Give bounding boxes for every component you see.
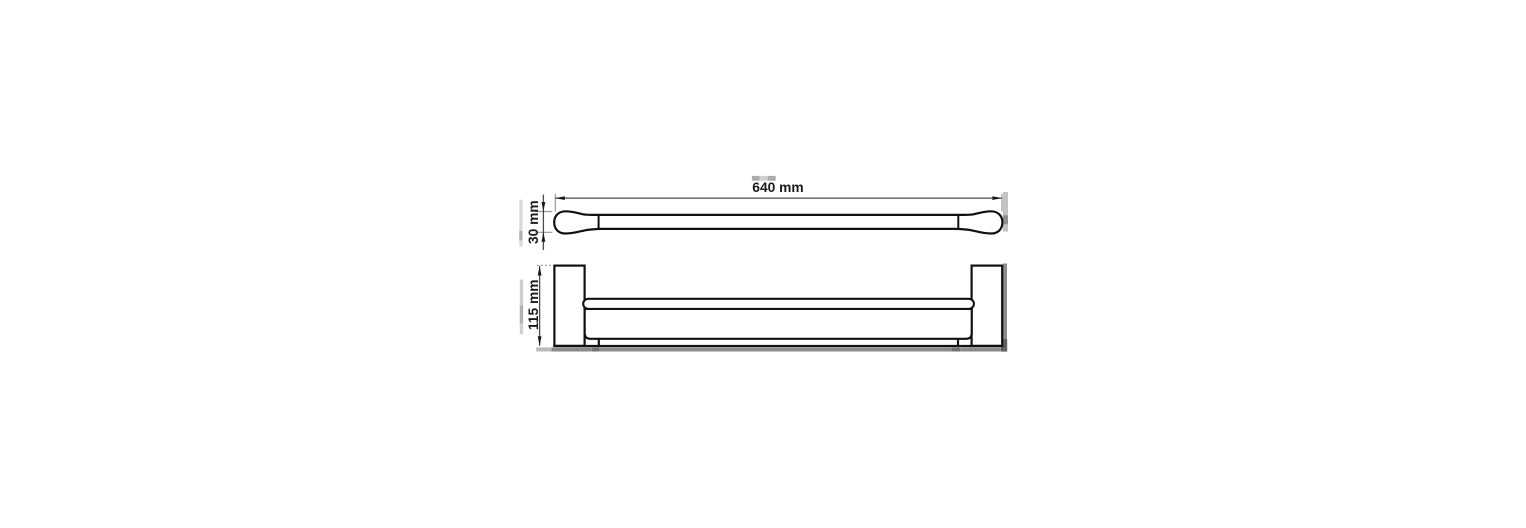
svg-text:30 mm: 30 mm [526, 200, 541, 244]
svg-text:115 mm: 115 mm [526, 279, 541, 330]
svg-text:640 mm: 640 mm [752, 180, 803, 195]
